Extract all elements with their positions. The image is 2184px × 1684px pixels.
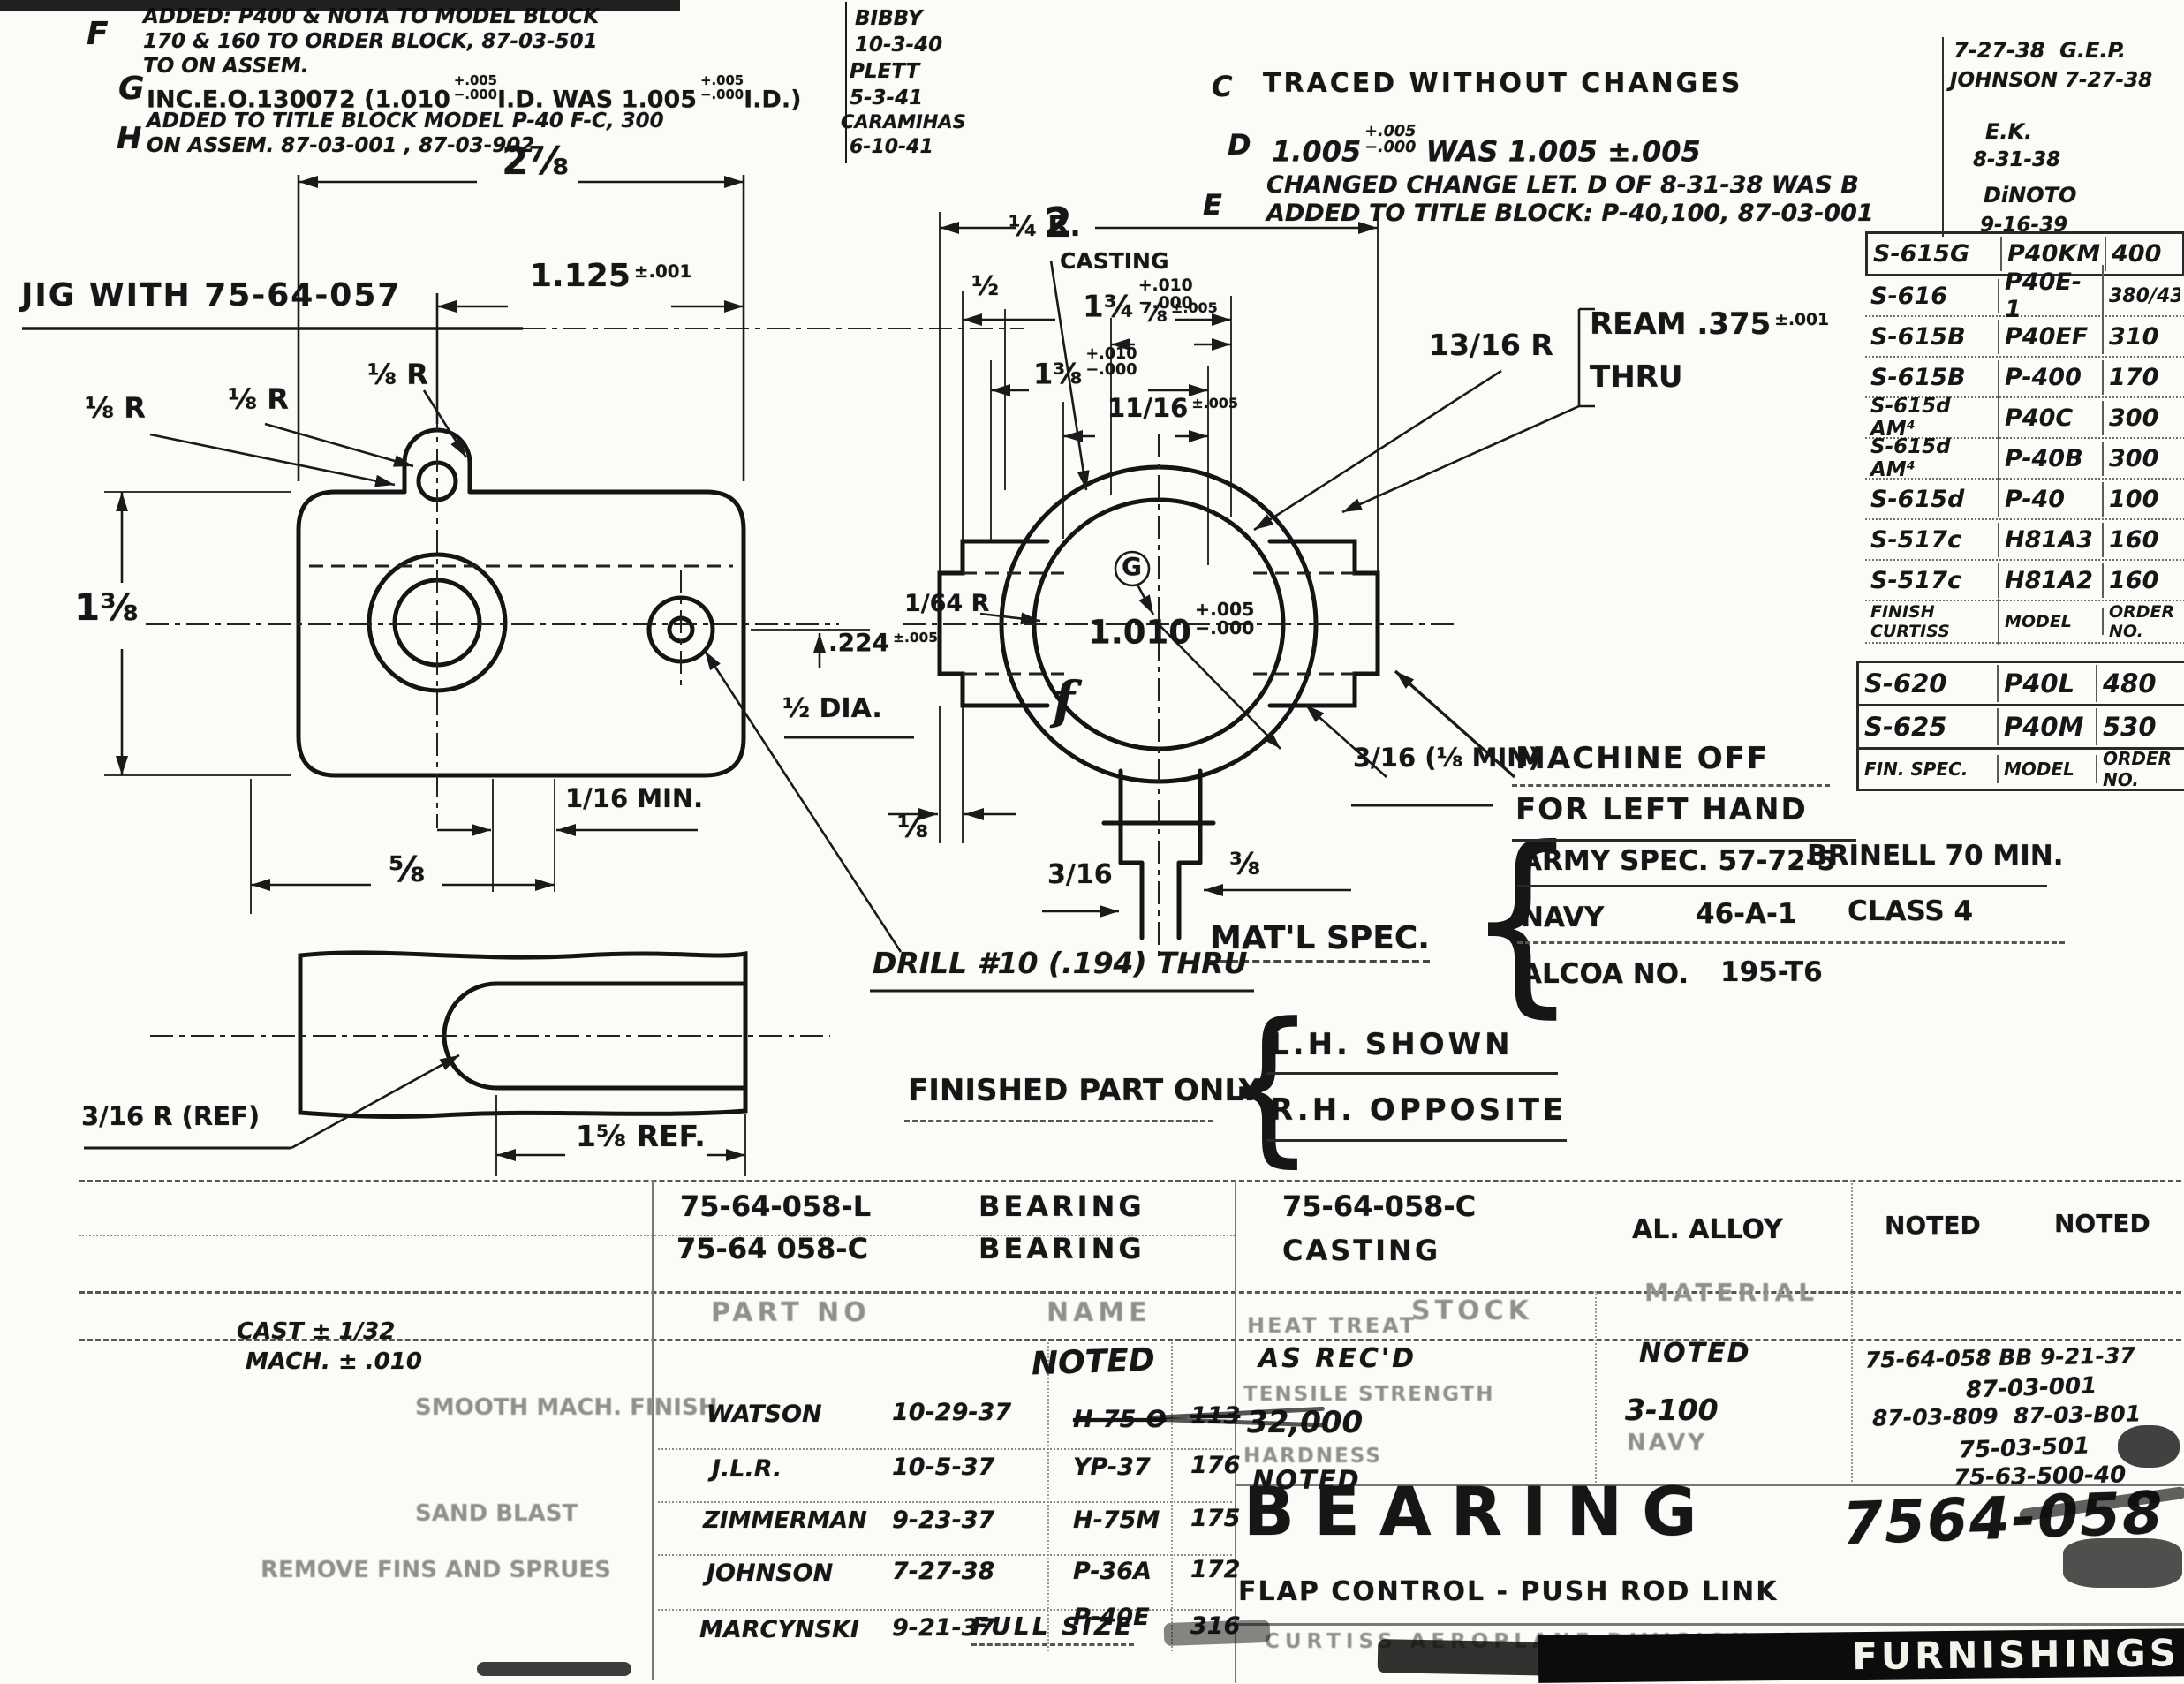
dim-value: 1.125 bbox=[530, 258, 631, 294]
finish-noted-1: NOTED bbox=[1885, 1212, 1981, 1240]
rev-g-line: INC.E.O.130072 (1.010+.005 −.000I.D. WAS… bbox=[147, 74, 801, 114]
ink-smudge bbox=[1164, 1620, 1271, 1646]
stamp-text: FURNISHINGS bbox=[1852, 1631, 2180, 1678]
dim-value: 11/16 bbox=[1107, 393, 1188, 423]
matl-army-spec: ARMY SPEC. 57-72-5 bbox=[1521, 846, 1836, 878]
machine-off-note-1: MACHINE OFF bbox=[1515, 742, 1769, 776]
rev-f-by: BIBBY bbox=[855, 7, 923, 30]
dim-316-radius-ref: 3/16 R (REF) bbox=[81, 1102, 260, 1131]
sig-order: 172 bbox=[1190, 1556, 1240, 1583]
dim-value: 1¾ bbox=[1083, 290, 1135, 325]
machine-off-rule-2 bbox=[1512, 839, 1856, 842]
dim-value: 1.010 bbox=[1088, 613, 1191, 651]
tensile-label: TENSILE STRENGTH bbox=[1243, 1383, 1494, 1406]
plane-cell: P40EF bbox=[1999, 320, 2104, 354]
rev-c-text: TRACED WITHOUT CHANGES bbox=[1263, 69, 1742, 100]
dim-radius-14: ¼ R. bbox=[1009, 210, 1081, 243]
part-title: BEARING bbox=[1243, 1473, 1716, 1550]
rev-letter-d: D bbox=[1228, 129, 1251, 162]
dim-316-lug: 3/16 bbox=[1047, 860, 1113, 891]
sig-date: 9-23-37 bbox=[892, 1507, 994, 1534]
note-mach-finish: SMOOTH MACH. FINISH bbox=[415, 1395, 717, 1422]
order-cell: 310 bbox=[2104, 320, 2180, 354]
spec-cell: S-625 bbox=[1859, 708, 1999, 745]
order-cell: 170 bbox=[2104, 360, 2180, 395]
dim-224: .224±.005 bbox=[828, 629, 938, 657]
rev-h-line2: ON ASSEM. 87-03-001 , 87-03-902 bbox=[147, 134, 534, 157]
ref-scribble-2: 87-03-001 bbox=[1966, 1373, 2097, 1404]
sig-model: H-75M bbox=[1073, 1507, 1160, 1534]
title-block-v3 bbox=[1595, 1291, 1597, 1485]
table-row: S-616P40E-1380/430 bbox=[1865, 276, 2184, 317]
machine-off-note-2: FOR LEFT HAND bbox=[1515, 793, 1808, 827]
dim-value: 1⅜ bbox=[1033, 357, 1082, 390]
dim-radius-18-c: ⅛ R bbox=[367, 359, 428, 391]
heat-treat-label: HEAT TREAT bbox=[1247, 1314, 1417, 1339]
plane-cell: P40L bbox=[1999, 665, 2097, 702]
dim-radius-1316: 13/16 R bbox=[1429, 328, 1553, 362]
table-row: S-620P40L480 bbox=[1859, 663, 2184, 706]
rev-e-line1: CHANGED CHANGE LET. D OF 8-31-38 WAS B bbox=[1266, 171, 1859, 199]
dim-value: .224 bbox=[828, 628, 889, 657]
part-subtitle: FLAP CONTROL - PUSH ROD LINK bbox=[1238, 1577, 1779, 1608]
dim-58: ⅝ bbox=[389, 850, 425, 890]
sig-name: MARCYNSKI bbox=[699, 1616, 859, 1643]
header-stock: STOCK bbox=[1411, 1296, 1533, 1327]
order-cell: 160 bbox=[2104, 563, 2180, 598]
sig-order: 175 bbox=[1190, 1505, 1240, 1532]
finish-spec-table: S-620P40L480 S-625P40M530 FIN. SPEC.MODE… bbox=[1856, 661, 2184, 791]
title-block-rule-2 bbox=[79, 1291, 2181, 1294]
model-cell: S-615G bbox=[1868, 237, 2002, 271]
ref-scribble-3: 87-03-809 87-03-B01 bbox=[1872, 1401, 2142, 1431]
model-order-table: S-615GP40KM400 S-616P40E-1380/430 S-615B… bbox=[1865, 231, 2184, 644]
rh-rule bbox=[1266, 1139, 1567, 1142]
order-cell: 400 bbox=[2106, 237, 2182, 271]
tolerance-cast: CAST ± 1/32 bbox=[237, 1319, 395, 1346]
order-cell: 160 bbox=[2104, 523, 2180, 557]
dim-tolerance: ±.005 bbox=[893, 631, 938, 645]
rev-letter-f: F bbox=[87, 16, 109, 52]
fin-spec-label: FIN. SPEC. bbox=[1859, 755, 1999, 783]
ink-stamp: FURNISHINGS bbox=[1538, 1628, 2184, 1683]
table-footer-row: FIN. SPEC.MODELORDER NO. bbox=[1859, 750, 2184, 789]
rev-g-text3: I.D.) bbox=[744, 87, 801, 114]
scan-edge-smear bbox=[0, 0, 680, 11]
rev-g-tol1: +.005 −.000 bbox=[454, 74, 497, 102]
rev-e-line2: ADDED TO TITLE BLOCK: P-40,100, 87-03-00… bbox=[1266, 200, 1874, 227]
matl-navy-label: NAVY bbox=[1521, 902, 1604, 934]
spec-cell: S-620 bbox=[1859, 665, 1999, 702]
header-part-no: PART NO bbox=[711, 1298, 871, 1329]
finished-part-label: FINISHED PART ONLY bbox=[908, 1074, 1260, 1108]
dim-height-138: 1⅜ bbox=[74, 586, 139, 629]
dim-tolerance: +.005 −.000 bbox=[1195, 600, 1254, 638]
heat-treat-value: AS REC'D bbox=[1258, 1344, 1417, 1375]
sig-date: 10-29-37 bbox=[892, 1399, 1011, 1426]
note-sand-blast: SAND BLAST bbox=[415, 1501, 578, 1528]
table-row: S-517cH81A2160 bbox=[1865, 561, 2184, 601]
rev-d-val1: 1.005 bbox=[1272, 134, 1361, 168]
plane-cell: H81A2 bbox=[1999, 563, 2104, 598]
rev-h-date: 6-10-41 bbox=[850, 136, 933, 158]
rev-letter-h: H bbox=[117, 122, 141, 156]
sig-rule-2 bbox=[658, 1501, 1232, 1503]
part-name-lh: BEARING bbox=[979, 1190, 1145, 1223]
rev-d-tol: +.005 −.000 bbox=[1364, 124, 1416, 156]
order-cell: 380/430 bbox=[2104, 282, 2180, 311]
dim-158-ref: 1⅝ REF. bbox=[576, 1120, 706, 1153]
ink-smudge bbox=[1378, 1639, 1564, 1676]
dim-radius-164: 1/64 R bbox=[904, 590, 989, 617]
sig-date: 7-27-38 bbox=[892, 1558, 994, 1585]
model-cell: S-616 bbox=[1865, 279, 1999, 313]
finished-part-underline bbox=[904, 1120, 1213, 1122]
dim-half: ½ bbox=[971, 272, 999, 303]
lh-shown-note: L.H. SHOWN bbox=[1270, 1028, 1514, 1062]
dim-radius-18-a: ⅛ R bbox=[85, 392, 146, 425]
part-number-casting: 75-64 058-C bbox=[676, 1233, 868, 1265]
table-row: S-625P40M530 bbox=[1859, 706, 2184, 750]
sig-divider-1 bbox=[1047, 1342, 1049, 1651]
ink-blot bbox=[2118, 1425, 2180, 1468]
matl-navy-class: CLASS 4 bbox=[1848, 896, 1973, 928]
title-rule-below bbox=[1235, 1623, 2184, 1626]
dim-tolerance: ±.001 bbox=[634, 263, 691, 282]
dim-radius-18-b: ⅛ R bbox=[228, 383, 289, 416]
title-block-v4 bbox=[1851, 1180, 1853, 1485]
stock-number: 75-64-058-C bbox=[1282, 1190, 1476, 1223]
order-cell: 300 bbox=[2104, 401, 2180, 435]
order-cell: 100 bbox=[2104, 482, 2180, 517]
dim-tolerance: ±.005 bbox=[1171, 301, 1218, 316]
rev-g-by: PLETT bbox=[850, 60, 919, 83]
dim-1116: 11/16±.005 bbox=[1107, 394, 1238, 423]
tolerance-mach: MACH. ± .010 bbox=[246, 1349, 422, 1376]
rev-letter-c: C bbox=[1212, 71, 1232, 103]
order-header: ORDER NO. bbox=[2097, 744, 2173, 794]
model-cell: S-517c bbox=[1865, 523, 1999, 557]
sig-divider-2 bbox=[1171, 1342, 1173, 1651]
rev-f-line2: 170 & 160 TO ORDER BLOCK, 87-03-501 bbox=[143, 30, 598, 53]
rev-letter-e: E bbox=[1203, 189, 1222, 222]
model-header: MODEL bbox=[1999, 608, 2104, 635]
ream-thru: THRU bbox=[1590, 360, 1682, 395]
dim-116-min: 1/16 MIN. bbox=[565, 784, 703, 813]
ream-tolerance: ±.001 bbox=[1774, 312, 1829, 329]
title-block-v2 bbox=[1235, 1180, 1236, 1683]
surface-f-mark: f bbox=[1053, 671, 1075, 730]
matl-rule-2 bbox=[1517, 941, 2065, 944]
material-value: AL. ALLOY bbox=[1632, 1215, 1783, 1246]
ref-scribble-1: 75-64-058 BB 9-21-37 bbox=[1865, 1343, 2135, 1373]
mid-navy-label: NAVY bbox=[1627, 1431, 1707, 1457]
sig-name: J.L.R. bbox=[712, 1455, 782, 1483]
finish-noted-2: NOTED bbox=[2054, 1210, 2150, 1238]
title-block-v1 bbox=[652, 1180, 654, 1680]
order-cell: 300 bbox=[2104, 442, 2180, 476]
plane-cell: P40C bbox=[1999, 401, 2104, 435]
dim-bore-1010: 1.010+.005 −.000 bbox=[1088, 600, 1254, 652]
table-row: S-615dP-40100 bbox=[1865, 480, 2184, 520]
plane-cell: P40E-1 bbox=[1999, 265, 2104, 327]
dim-316-18min: 3/16 (⅛ MIN) bbox=[1353, 744, 1540, 773]
rev-d-line: 1.005+.005 −.000 WAS 1.005 ±.005 bbox=[1272, 124, 1701, 168]
plane-cell: P-40 bbox=[1999, 482, 2104, 517]
casting-label: CASTING bbox=[1060, 249, 1169, 275]
table-footer-row: FINISH CURTISSMODELORDER NO. bbox=[1865, 601, 2184, 644]
rev-g-tol2: +.005 −.000 bbox=[700, 74, 744, 102]
ream-note: REAM .375±.001 bbox=[1590, 307, 1829, 342]
dim-tolerance: +.010 −.000 bbox=[1085, 346, 1137, 379]
model-cell: S-615d bbox=[1865, 482, 1999, 517]
title-block-rule-top bbox=[79, 1180, 2181, 1182]
drawing-sheet: F ADDED: P400 & NOTA TO MODEL BLOCK 170 … bbox=[0, 0, 2184, 1684]
rev-d-by2: 8-31-38 bbox=[1973, 148, 2060, 171]
table-row: S-615d AM⁴P-40B300 bbox=[1865, 439, 2184, 480]
rev-e-by1: DiNOTO bbox=[1984, 184, 2076, 208]
sig-model: YP-37 bbox=[1073, 1454, 1151, 1481]
rev-h-by: CARAMIHAS bbox=[841, 111, 966, 132]
rev-d-val2: WAS 1.005 ±.005 bbox=[1416, 134, 1700, 168]
matl-alcoa-value: 195-T6 bbox=[1720, 957, 1823, 989]
sig-name: WATSON bbox=[707, 1401, 822, 1428]
plane-cell: P-40B bbox=[1999, 442, 2104, 476]
matl-alcoa-label: ALCOA NO. bbox=[1521, 959, 1689, 991]
mid-noted: NOTED bbox=[1639, 1339, 1750, 1370]
dim-1125: 1.125±.001 bbox=[530, 258, 691, 294]
jig-note: JIG WITH 75-64-057 bbox=[21, 277, 401, 313]
model-cell: S-615B bbox=[1865, 360, 1999, 395]
machine-off-rule bbox=[1512, 784, 1830, 787]
rev-h-line1: ADDED TO TITLE BLOCK MODEL P-40 F-C, 300 bbox=[147, 109, 664, 132]
part-number-lh: 75-64-058-L bbox=[680, 1190, 871, 1223]
sig-name: ZIMMERMAN bbox=[703, 1508, 867, 1535]
dim-18-tab: ⅛ bbox=[897, 811, 928, 845]
ink-blot bbox=[2063, 1538, 2182, 1588]
rev-letter-g: G bbox=[118, 71, 145, 107]
part-name-casting: BEARING bbox=[979, 1233, 1145, 1265]
matl-rule-1 bbox=[1517, 885, 2047, 887]
order-cell: 480 bbox=[2097, 665, 2173, 702]
dim-78: ⅞±.005 bbox=[1141, 298, 1218, 328]
dim-half-dia: ½ DIA. bbox=[782, 694, 882, 725]
rh-opposite-note: R.H. OPPOSITE bbox=[1270, 1093, 1567, 1128]
matl-navy-spec: 46-A-1 bbox=[1696, 899, 1796, 931]
sig-model: P-36A bbox=[1073, 1558, 1152, 1585]
rev-d-by1: E.K. bbox=[1985, 120, 2032, 145]
table-row: S-517cH81A3160 bbox=[1865, 520, 2184, 561]
ink-smudge bbox=[477, 1662, 631, 1676]
sig-order: 176 bbox=[1190, 1452, 1240, 1479]
plane-cell: P40M bbox=[1999, 708, 2097, 745]
rev-c-by2: JOHNSON 7-27-38 bbox=[1950, 69, 2152, 92]
drill-note: DRILL #10 (.194) THRU bbox=[873, 947, 1247, 980]
dim-tolerance: ±.005 bbox=[1191, 396, 1238, 412]
plane-cell: H81A3 bbox=[1999, 523, 2104, 557]
scale-note: FULL SIZE bbox=[971, 1612, 1134, 1646]
finish-label: FINISH CURTISS bbox=[1865, 599, 1999, 645]
sig-name: JOHNSON bbox=[707, 1559, 833, 1587]
sig-rule-1 bbox=[658, 1448, 1232, 1450]
sig-date: 10-5-37 bbox=[892, 1454, 994, 1481]
table-row: S-615BP40EF310 bbox=[1865, 317, 2184, 358]
ref-scribble-4: 75-03-501 bbox=[1959, 1433, 2090, 1464]
dim-38-lug: ⅜ bbox=[1229, 848, 1260, 882]
rev-c-by1: 7-27-38 G.E.P. bbox=[1954, 39, 2126, 64]
stock-name: CASTING bbox=[1282, 1235, 1440, 1267]
rev-f-date: 10-3-40 bbox=[855, 34, 942, 57]
model-cell: S-615B bbox=[1865, 320, 1999, 354]
header-name: NAME bbox=[1047, 1298, 1152, 1329]
matl-army-brinell: BRINELL 70 MIN. bbox=[1807, 841, 2064, 872]
dim-138-casting: 1⅜+.010 −.000 bbox=[1033, 346, 1137, 390]
mid-spec-value: 3-100 bbox=[1625, 1393, 1719, 1427]
part-outlines bbox=[299, 430, 1378, 1117]
datum-g-label: G bbox=[1122, 553, 1142, 581]
lh-rule bbox=[1266, 1072, 1558, 1075]
header-material: MATERIAL bbox=[1644, 1279, 1818, 1307]
order-header: ORDER NO. bbox=[2104, 599, 2180, 645]
order-cell: 530 bbox=[2097, 708, 2173, 745]
plane-cell: P-400 bbox=[1999, 360, 2104, 395]
sig-rule-3 bbox=[658, 1554, 1232, 1556]
ream-text: REAM .375 bbox=[1590, 306, 1771, 342]
rev-g-date: 5-3-41 bbox=[850, 87, 923, 109]
model-header: MODEL bbox=[1999, 755, 2097, 783]
dim-overall-width: 2⅞ bbox=[502, 140, 569, 185]
approval-noted: NOTED bbox=[1031, 1342, 1155, 1383]
finished-part-brace: { bbox=[1220, 987, 1316, 1183]
model-cell: S-517c bbox=[1865, 563, 1999, 598]
dim-value: ⅞ bbox=[1141, 298, 1168, 328]
model-cell: S-615d AM⁴ bbox=[1865, 432, 1999, 485]
note-remove-fins: REMOVE FINS AND SPRUES bbox=[261, 1558, 611, 1584]
